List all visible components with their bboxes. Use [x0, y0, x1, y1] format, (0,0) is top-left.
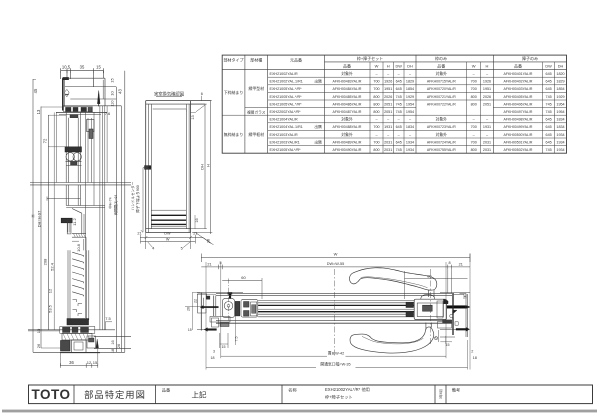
svg-text:800: 800: [373, 110, 379, 114]
svg-text:1829: 1829: [556, 80, 564, 84]
svg-text:1926: 1926: [483, 80, 491, 84]
svg-text:品番: 品番: [514, 62, 522, 68]
svg-text:745: 745: [396, 148, 402, 152]
svg-text:EXH21005YAL.*/R*: EXH21005YAL.*/R*: [270, 87, 303, 91]
svg-text:AFKH00405YAL/R: AFKH00405YAL/R: [504, 95, 533, 99]
svg-text:85: 85: [427, 275, 431, 279]
svg-text:貫B:W-42: 貫B:W-42: [328, 351, 344, 356]
svg-text:16: 16: [195, 218, 199, 222]
svg-text:対象外: 対象外: [436, 132, 448, 137]
svg-text:12: 12: [48, 288, 53, 293]
svg-text:出隅: 出隅: [314, 124, 322, 129]
svg-text:800: 800: [373, 95, 379, 99]
svg-text:1854: 1854: [406, 87, 414, 91]
svg-text:縁甲型材: 縁甲型材: [249, 86, 265, 91]
svg-text:品番: 品番: [437, 62, 445, 68]
svg-text:18: 18: [211, 356, 215, 360]
svg-text:AFKH00402YAL/R: AFKH00402YAL/R: [504, 80, 533, 84]
svg-text:45: 45: [33, 88, 38, 93]
svg-text:AFKH00483YAL/R: AFKH00483YAL/R: [333, 80, 362, 84]
svg-text:645: 645: [546, 87, 552, 91]
svg-text:中H-74: 中H-74: [108, 197, 113, 208]
svg-text:4: 4: [152, 246, 154, 250]
svg-text:1951: 1951: [483, 87, 491, 91]
svg-text:700: 700: [471, 80, 477, 84]
svg-text:枠のみ: 枠のみ: [435, 55, 447, 61]
svg-text:18: 18: [473, 356, 477, 360]
svg-text:745: 745: [396, 102, 402, 106]
svg-text:1954: 1954: [556, 110, 564, 114]
svg-text:H: H: [486, 63, 489, 68]
svg-text:645: 645: [546, 133, 552, 137]
svg-text:7.5: 7.5: [105, 316, 111, 321]
svg-text:EXH21002YAL*/R* 他用: EXH21002YAL*/R* 他用: [325, 386, 370, 393]
svg-text:AFKH00720YAL/R: AFKH00720YAL/R: [427, 87, 456, 91]
svg-text:800: 800: [373, 148, 379, 152]
svg-text:10.8: 10.8: [76, 243, 81, 252]
svg-text:1934: 1934: [406, 140, 414, 144]
svg-text:8: 8: [448, 261, 450, 265]
svg-text:15: 15: [188, 328, 192, 332]
svg-text:700: 700: [471, 125, 477, 129]
svg-text:1834: 1834: [406, 125, 414, 129]
svg-text:5: 5: [219, 261, 221, 265]
svg-text:800: 800: [471, 102, 477, 106]
svg-text:障子のみ: 障子のみ: [522, 55, 538, 61]
svg-text:縁甲框材: 縁甲框材: [249, 132, 265, 137]
svg-text:700: 700: [373, 87, 379, 91]
svg-text:障子下端より900: 障子下端より900: [135, 185, 140, 213]
svg-text:DW: DW: [396, 64, 403, 68]
svg-text:16: 16: [111, 340, 115, 344]
svg-text:EXH21005YAL.*/R*: EXH21005YAL.*/R*: [270, 95, 303, 99]
svg-text:2031: 2031: [384, 148, 392, 152]
svg-text:26: 26: [187, 307, 191, 311]
svg-text:DW=W-55: DW=W-55: [327, 262, 345, 266]
svg-text:1934: 1934: [556, 148, 564, 152]
svg-text:AFKH00484YAL/R: AFKH00484YAL/R: [333, 87, 362, 91]
svg-text:複層ガラス: 複層ガラス: [247, 110, 266, 115]
svg-text:1854: 1854: [556, 87, 564, 91]
svg-text:35: 35: [80, 65, 85, 70]
svg-text:AFKH00488YAL/R: AFKH00488YAL/R: [333, 125, 362, 129]
svg-text:TOTO: TOTO: [31, 387, 70, 402]
svg-text:出隅: 出隅: [314, 139, 322, 144]
svg-text:2026: 2026: [384, 95, 392, 99]
svg-text:1834: 1834: [556, 125, 564, 129]
svg-text:800: 800: [471, 95, 477, 99]
svg-text:700: 700: [373, 140, 379, 144]
svg-text:AFKH00724YAL/R: AFKH00724YAL/R: [427, 140, 456, 144]
svg-text:DW: DW: [545, 64, 552, 68]
svg-text:AFKH00723YAL/R: AFKH00723YAL/R: [427, 125, 456, 129]
svg-text:53.5: 53.5: [48, 304, 53, 313]
svg-text:43: 43: [118, 89, 123, 94]
svg-text:AFKH00501YAL/R: AFKH00501YAL/R: [504, 140, 533, 144]
svg-text:H: H: [387, 63, 390, 68]
svg-text:745: 745: [546, 102, 552, 106]
svg-text:645: 645: [546, 125, 552, 129]
svg-text:枠+障子セット: 枠+障子セット: [325, 394, 353, 401]
svg-text:645: 645: [396, 87, 402, 91]
svg-text:2051: 2051: [384, 102, 392, 106]
svg-text:AFKH00502YAL/R: AFKH00502YAL/R: [504, 148, 533, 152]
svg-text:名称: 名称: [288, 387, 296, 394]
svg-text:AFKH00715YAL/R: AFKH00715YAL/R: [427, 80, 456, 84]
svg-text:対象外: 対象外: [341, 117, 353, 122]
svg-text:AFKH00721YAL/R: AFKH00721YAL/R: [427, 95, 456, 99]
svg-text:1820: 1820: [556, 72, 564, 76]
svg-text:実室換気確認図: 実室換気確認図: [154, 90, 184, 97]
svg-text:645: 645: [546, 80, 552, 84]
svg-text:1929: 1929: [406, 95, 414, 99]
svg-text:2: 2: [471, 350, 473, 354]
svg-text:60: 60: [241, 275, 246, 280]
svg-text:6: 6: [434, 337, 438, 339]
svg-text:645: 645: [546, 118, 552, 122]
svg-text:EXH21004YAL/R: EXH21004YAL/R: [270, 118, 299, 122]
svg-text:2031: 2031: [483, 140, 491, 144]
svg-text:13: 13: [191, 115, 195, 119]
svg-text:AFKH00486YAL/R: AFKH00486YAL/R: [333, 102, 362, 106]
svg-text:W: W: [375, 63, 379, 68]
svg-text:28: 28: [207, 239, 211, 243]
svg-text:10.5: 10.5: [62, 65, 71, 70]
svg-text:700: 700: [373, 125, 379, 129]
svg-text:部品特定用図: 部品特定用図: [84, 389, 146, 400]
svg-text:5: 5: [181, 246, 183, 250]
svg-text:AFKH00485YAL/R: AFKH00485YAL/R: [333, 95, 362, 99]
svg-text:1934: 1934: [406, 148, 414, 152]
svg-text:AFKH00489YAL/R: AFKH00489YAL/R: [333, 140, 362, 144]
svg-text:AFKH00500YAL/R: AFKH00500YAL/R: [504, 133, 533, 137]
svg-text:3年6月: 3年6月: [438, 389, 443, 399]
svg-text:EXH21003YAL/R: EXH21003YAL/R: [270, 133, 299, 137]
svg-text:645: 645: [396, 125, 402, 129]
svg-text:部材タイプ: 部材タイプ: [224, 57, 244, 63]
svg-text:AFKH00490YAL/R: AFKH00490YAL/R: [333, 148, 362, 152]
svg-text:745: 745: [396, 110, 402, 114]
svg-text:2031: 2031: [483, 148, 491, 152]
svg-text:対象外: 対象外: [341, 132, 353, 137]
svg-text:745: 745: [396, 95, 402, 99]
svg-text:1834: 1834: [556, 118, 564, 122]
svg-text:26: 26: [36, 343, 41, 348]
svg-text:700: 700: [471, 87, 477, 91]
svg-text:645: 645: [396, 80, 402, 84]
svg-text:W: W: [334, 251, 338, 256]
svg-text:1954: 1954: [406, 102, 414, 106]
svg-text:AFKH00499YAL/R: AFKH00499YAL/R: [504, 125, 533, 129]
svg-text:DH: DH: [558, 64, 564, 68]
svg-text:800: 800: [373, 102, 379, 106]
svg-text:開通気口幅=W-35: 開通気口幅=W-35: [320, 362, 350, 367]
svg-text:AFKH00498YAL/R: AFKH00498YAL/R: [504, 118, 533, 122]
svg-text:H: H: [205, 164, 210, 167]
svg-text:W: W: [166, 238, 170, 242]
svg-text:EXH22002YAL*/R*: EXH22002YAL*/R*: [270, 110, 302, 114]
svg-text:645: 645: [396, 140, 402, 144]
svg-text:AFKH00497YAL/R: AFKH00497YAL/R: [504, 110, 533, 114]
svg-text:700: 700: [471, 140, 477, 144]
svg-text:15: 15: [93, 360, 98, 365]
svg-text:13: 13: [36, 109, 41, 114]
svg-text:2051: 2051: [483, 102, 491, 106]
svg-text:10: 10: [36, 328, 41, 333]
svg-text:H: H: [31, 214, 36, 217]
svg-text:7.5: 7.5: [234, 337, 238, 342]
svg-text:EXH21003YAL/R1: EXH21003YAL/R1: [270, 140, 300, 144]
svg-text:EXH21002YAL.1/R1: EXH21002YAL.1/R1: [270, 80, 303, 84]
svg-text:21: 21: [137, 232, 141, 236]
svg-text:AFKH00403YAL/R: AFKH00403YAL/R: [504, 87, 533, 91]
svg-text:700: 700: [373, 80, 379, 84]
svg-text:645: 645: [546, 140, 552, 144]
svg-text:品番: 品番: [162, 387, 171, 394]
svg-text:800: 800: [471, 148, 477, 152]
svg-text:対象外: 対象外: [436, 71, 448, 76]
svg-text:6: 6: [201, 92, 203, 96]
svg-text:対象外: 対象外: [341, 71, 353, 76]
svg-text:元品番: 元品番: [290, 57, 302, 63]
svg-text:無枠納まり: 無枠納まり: [224, 132, 244, 137]
svg-text:品番: 品番: [343, 62, 351, 68]
svg-text:1951: 1951: [384, 87, 392, 91]
svg-text:52.4: 52.4: [49, 262, 54, 271]
svg-text:2051: 2051: [384, 110, 392, 114]
svg-text:備考: 備考: [452, 387, 460, 394]
svg-text:7.6: 7.6: [105, 111, 111, 116]
svg-text:AFKH00401YAL/R: AFKH00401YAL/R: [504, 72, 533, 76]
svg-text:出隅: 出隅: [314, 79, 322, 84]
svg-text:枠+障子セット: 枠+障子セット: [357, 55, 383, 61]
svg-text:15: 15: [222, 345, 226, 349]
svg-text:上記: 上記: [192, 390, 207, 400]
svg-text:1954: 1954: [556, 102, 564, 106]
svg-text:1829: 1829: [406, 80, 414, 84]
svg-text:1926: 1926: [384, 80, 392, 84]
svg-text:12: 12: [87, 360, 92, 365]
svg-text:36: 36: [69, 360, 74, 365]
svg-text:1934: 1934: [556, 133, 564, 137]
svg-text:1934: 1934: [556, 140, 564, 144]
svg-text:72: 72: [42, 138, 47, 143]
svg-text:AFKH00755YAL/R: AFKH00755YAL/R: [427, 148, 456, 152]
svg-text:EXH21002YAL/R: EXH21002YAL/R: [270, 72, 299, 76]
svg-text:21: 21: [207, 262, 211, 266]
svg-text:22: 22: [193, 299, 197, 303]
svg-text:745: 745: [546, 110, 552, 114]
svg-text:ハンドルセンター: ハンドルセンター: [130, 181, 135, 210]
svg-text:AFKH00487YAL/R: AFKH00487YAL/R: [333, 110, 362, 114]
svg-text:2031: 2031: [384, 140, 392, 144]
svg-text:645: 645: [546, 72, 552, 76]
svg-text:10: 10: [110, 91, 115, 96]
svg-text:DW: DW: [164, 232, 171, 236]
svg-text:1929: 1929: [556, 95, 564, 99]
svg-text:DH=H-97: DH=H-97: [36, 210, 41, 228]
svg-text:21: 21: [459, 262, 463, 266]
svg-text:両開閉(3)=64: 両開閉(3)=64: [113, 195, 118, 216]
svg-text:26: 26: [117, 344, 121, 348]
svg-text:DH: DH: [407, 64, 413, 68]
svg-text:1931: 1931: [483, 125, 491, 129]
svg-text:745: 745: [546, 148, 552, 152]
svg-text:2026: 2026: [483, 95, 491, 99]
svg-text:208: 208: [43, 258, 48, 265]
svg-text:745: 745: [546, 95, 552, 99]
svg-text:EXH21005YAL*/R*: EXH21005YAL*/R*: [270, 148, 302, 152]
svg-text:11.2: 11.2: [72, 217, 77, 225]
svg-text:AFKH00406YAL/R: AFKH00406YAL/R: [504, 102, 533, 106]
svg-text:15: 15: [110, 78, 115, 83]
svg-text:DH: DH: [199, 164, 204, 170]
svg-text:EXH21005YAL.*/R*: EXH21005YAL.*/R*: [270, 102, 303, 106]
svg-text:AFKH00722YAL/R: AFKH00722YAL/R: [427, 102, 456, 106]
svg-text:W: W: [472, 63, 476, 68]
svg-text:1931: 1931: [384, 125, 392, 129]
svg-text:下枠納まり: 下枠納まり: [224, 90, 244, 95]
svg-text:部材種: 部材種: [250, 57, 262, 63]
svg-text:EXH21004YAL.1/R1: EXH21004YAL.1/R1: [270, 125, 303, 129]
svg-text:1954: 1954: [406, 110, 414, 114]
svg-text:対象外: 対象外: [436, 117, 448, 122]
svg-text:110: 110: [111, 100, 115, 106]
svg-text:3: 3: [213, 350, 215, 354]
svg-text:15: 15: [96, 65, 101, 70]
